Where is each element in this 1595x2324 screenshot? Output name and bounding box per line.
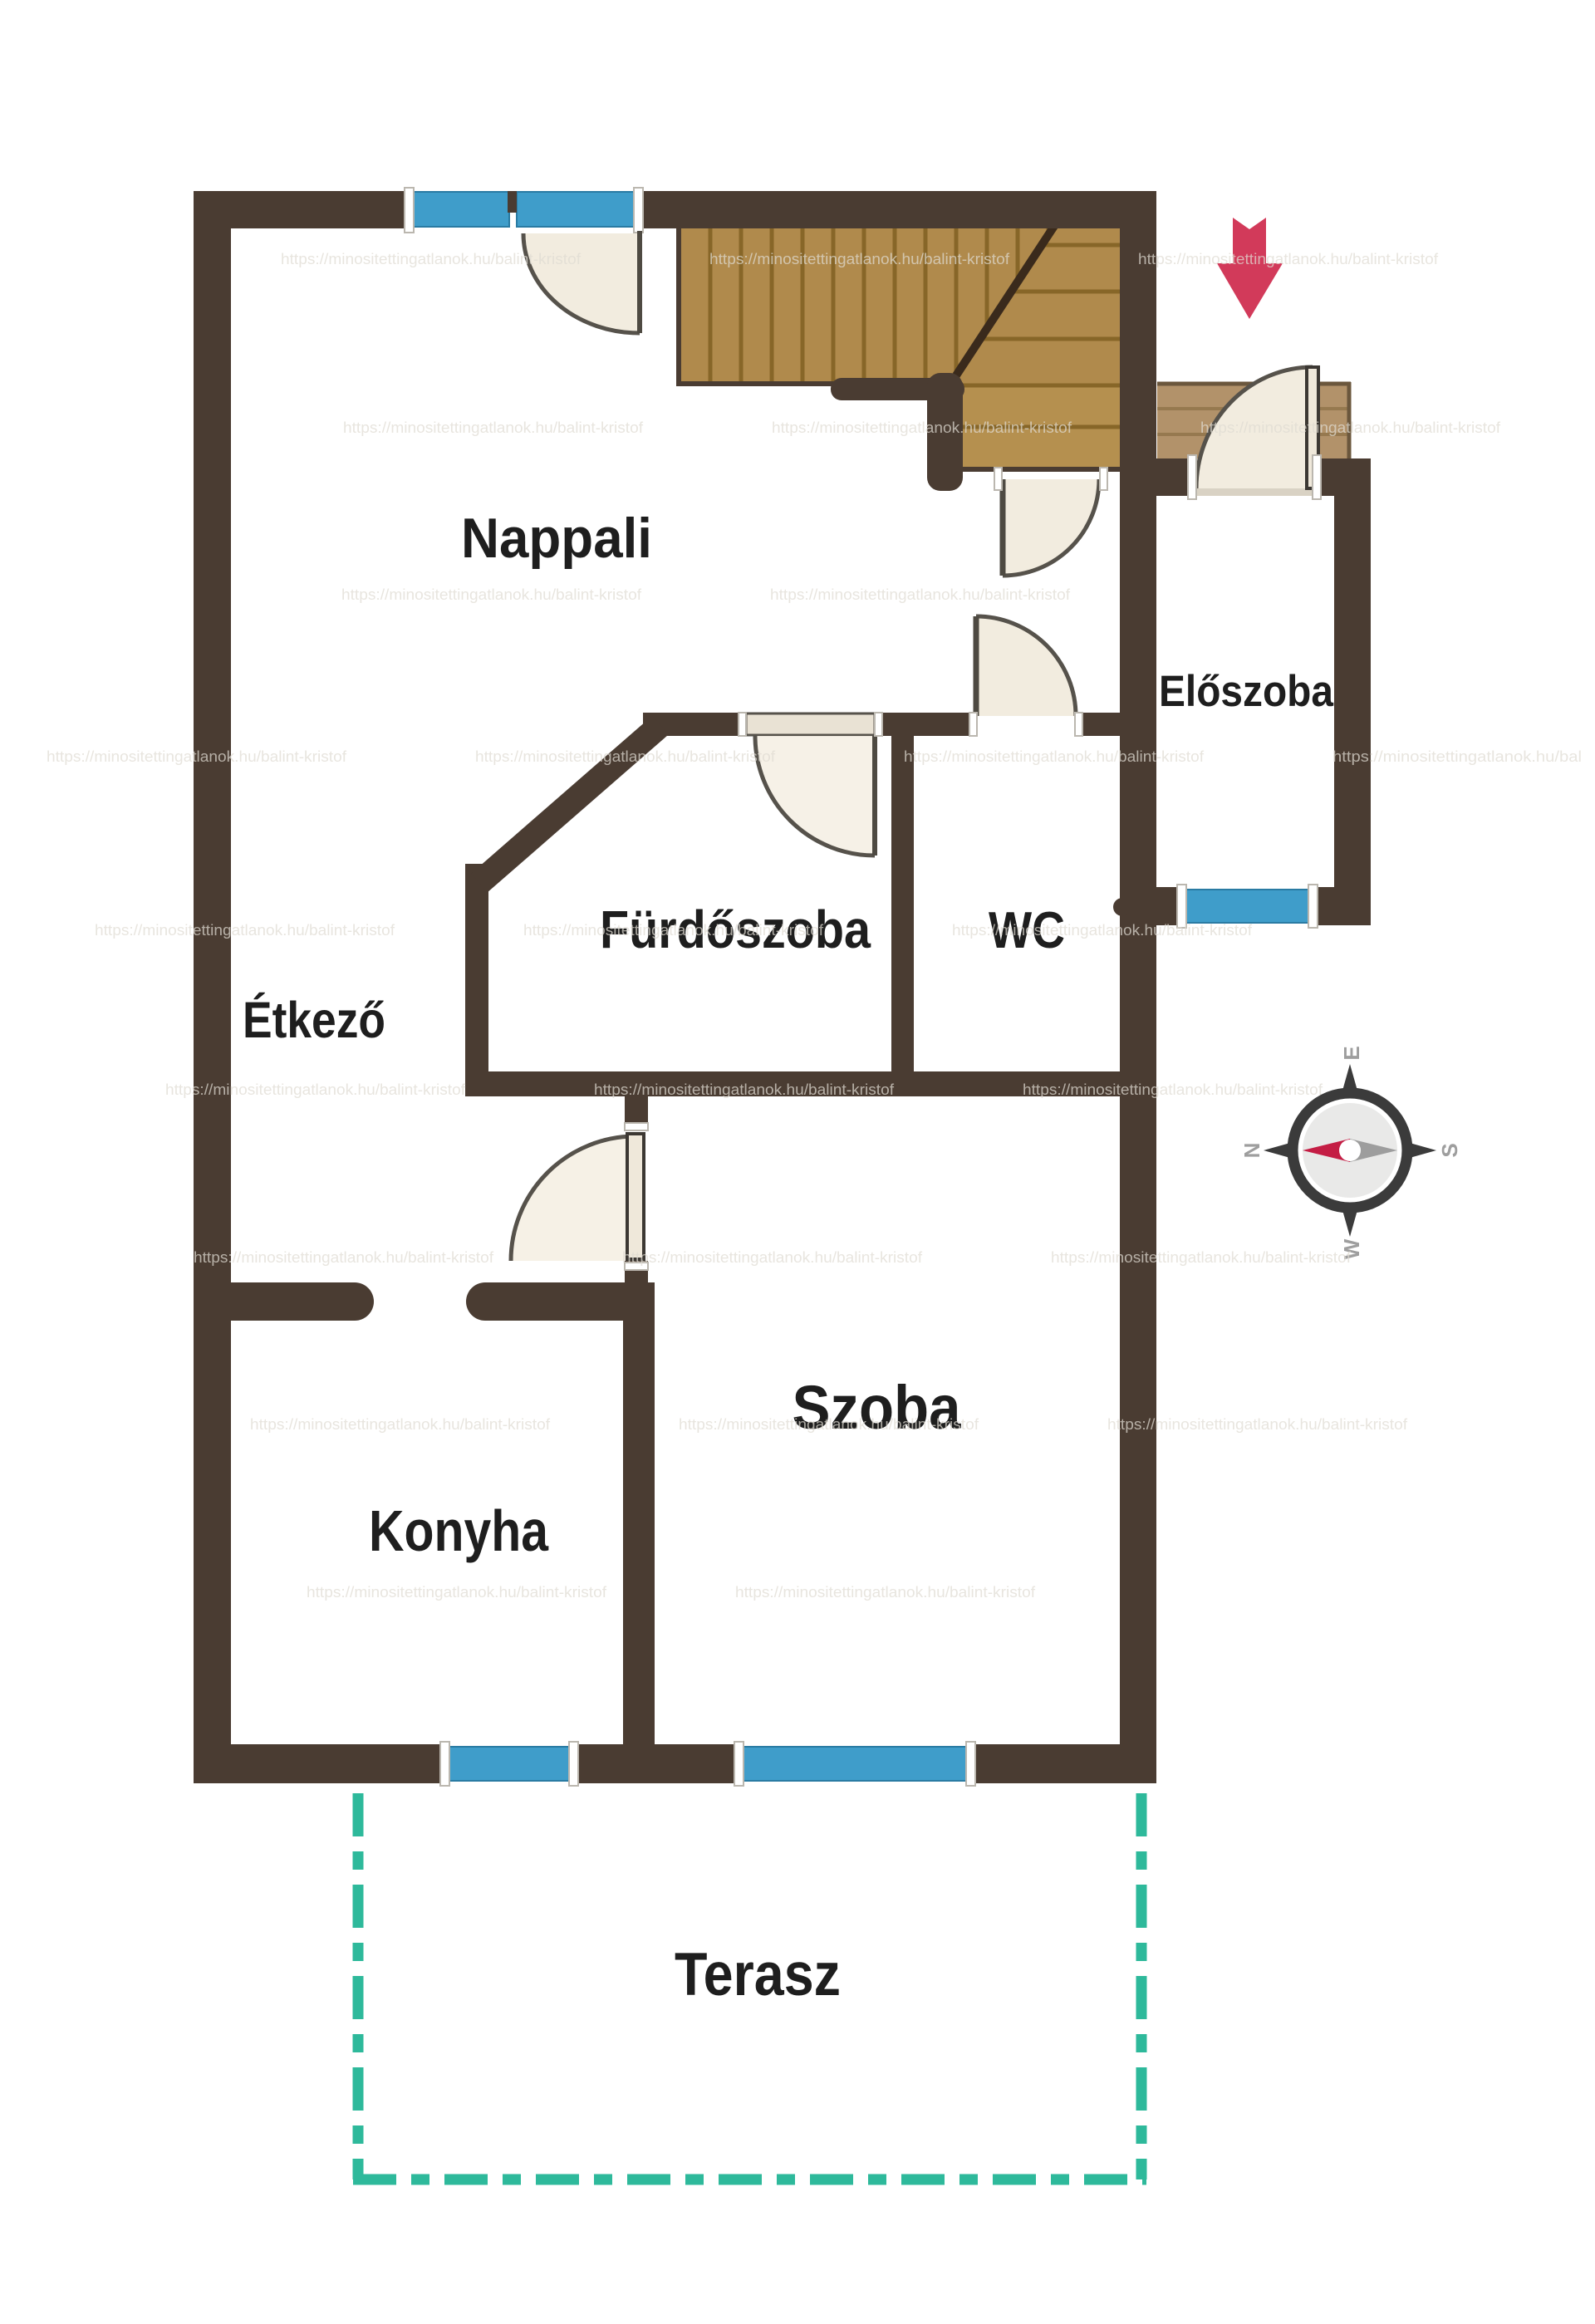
svg-text:https://minositettingatlanok.h: https://minositettingatlanok.hu/balint-k…: [95, 922, 395, 939]
svg-text:https://minositettingatlanok.h: https://minositettingatlanok.hu/balint-k…: [594, 1081, 895, 1098]
svg-text:https://minositettingatlanok.h: https://minositettingatlanok.hu/balint-k…: [1138, 251, 1439, 267]
svg-text:https://minositettingatlanok.h: https://minositettingatlanok.hu/balint-k…: [952, 922, 1253, 939]
svg-text:https://minositettingatlanok.h: https://minositettingatlanok.hu/balint-k…: [709, 251, 1010, 267]
svg-text:https://minositettingatlanok.h: https://minositettingatlanok.hu/balint-k…: [1107, 1416, 1408, 1433]
svg-text:https://minositettingatlanok.h: https://minositettingatlanok.hu/bal: [1332, 748, 1582, 765]
svg-text:https://minositettingatlanok.h: https://minositettingatlanok.hu/balint-k…: [307, 1584, 607, 1601]
svg-text:Terasz: Terasz: [675, 1941, 841, 2008]
svg-text:N: N: [1239, 1143, 1264, 1159]
svg-text:https://minositettingatlanok.h: https://minositettingatlanok.hu/balint-k…: [770, 586, 1071, 603]
svg-text:https://minositettingatlanok.h: https://minositettingatlanok.hu/balint-k…: [679, 1416, 979, 1433]
svg-text:https://minositettingatlanok.h: https://minositettingatlanok.hu/balint-k…: [47, 748, 347, 765]
svg-text:https://minositettingatlanok.h: https://minositettingatlanok.hu/balint-k…: [904, 748, 1205, 765]
svg-text:Előszoba: Előszoba: [1159, 667, 1333, 716]
svg-text:Étkező: Étkező: [243, 992, 385, 1048]
svg-text:https://minositettingatlanok.h: https://minositettingatlanok.hu/balint-k…: [1051, 1249, 1352, 1266]
svg-text:https://minositettingatlanok.h: https://minositettingatlanok.hu/balint-k…: [1200, 419, 1501, 436]
svg-text:https://minositettingatlanok.h: https://minositettingatlanok.hu/balint-k…: [343, 419, 644, 436]
svg-text:https://minositettingatlanok.h: https://minositettingatlanok.hu/balint-k…: [281, 251, 582, 267]
svg-text:Konyha: Konyha: [369, 1498, 549, 1563]
svg-text:https://minositettingatlanok.h: https://minositettingatlanok.hu/balint-k…: [165, 1081, 466, 1098]
svg-text:https://minositettingatlanok.h: https://minositettingatlanok.hu/balint-k…: [735, 1584, 1036, 1601]
svg-text:https://minositettingatlanok.h: https://minositettingatlanok.hu/balint-k…: [772, 419, 1072, 436]
svg-text:E: E: [1339, 1046, 1364, 1060]
svg-text:Nappali: Nappali: [461, 507, 652, 570]
svg-text:S: S: [1437, 1143, 1462, 1157]
svg-text:https://minositettingatlanok.h: https://minositettingatlanok.hu/balint-k…: [1023, 1081, 1323, 1098]
svg-text:https://minositettingatlanok.h: https://minositettingatlanok.hu/balint-k…: [341, 586, 642, 603]
svg-text:https://minositettingatlanok.h: https://minositettingatlanok.hu/balint-k…: [250, 1416, 551, 1433]
svg-text:https://minositettingatlanok.h: https://minositettingatlanok.hu/balint-k…: [523, 922, 824, 939]
svg-text:https://minositettingatlanok.h: https://minositettingatlanok.hu/balint-k…: [194, 1249, 494, 1266]
svg-text:https://minositettingatlanok.h: https://minositettingatlanok.hu/balint-k…: [622, 1249, 923, 1266]
svg-text:https://minositettingatlanok.h: https://minositettingatlanok.hu/balint-k…: [475, 748, 776, 765]
